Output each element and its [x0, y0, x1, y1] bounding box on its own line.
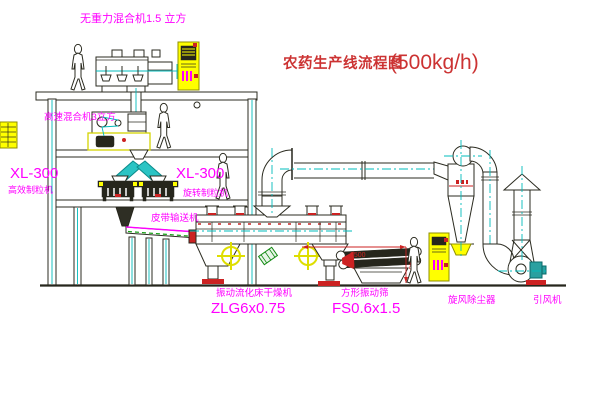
y-chute — [112, 161, 166, 184]
label-granulator-left-name: 高效制粒机 — [8, 184, 53, 195]
label-granulator-left-model: XL-300 — [10, 165, 58, 182]
mixer-outlet-cone — [130, 150, 148, 159]
label-screen-model: FS0.6x1.5 — [332, 300, 400, 317]
label-screen: 方形振动筛 — [341, 287, 389, 299]
indicator-light — [444, 263, 448, 267]
indicator-light — [444, 238, 448, 242]
label-dryer-model: ZLG6x0.75 — [211, 300, 285, 317]
indicator-light — [193, 43, 197, 47]
exhaust-duct — [254, 148, 438, 217]
granulator-left — [98, 181, 138, 201]
control-cabinet-top — [178, 42, 199, 90]
dim-width-label: 2500 — [350, 252, 366, 259]
title-capacity: (500kg/h) — [390, 51, 479, 74]
screen-base — [354, 268, 408, 283]
fan-motor — [530, 262, 542, 278]
cad-flow-diagram: 2500 340 无重力混合机1.5 立方 高速混合机3立方 XL-300 高效… — [0, 0, 600, 403]
indicator-light — [194, 74, 198, 78]
title-text: 农药生产线流程图 — [282, 54, 403, 72]
label-high-speed-mixer: 高速混合机3立方 — [44, 111, 116, 123]
diagram-canvas: 2500 340 无重力混合机1.5 立方 高速混合机3立方 XL-300 高效… — [0, 0, 600, 403]
mixer-motor — [96, 136, 114, 147]
fluid-bed-dryer-machine — [190, 206, 352, 286]
label-granulator-right-model: XL-300 — [176, 165, 224, 182]
wall-panel — [0, 122, 17, 148]
label-granulator-right-name: 旋转制粒机 — [183, 187, 228, 198]
diagram-title: 农药生产线流程图 (500kg/h) — [282, 51, 479, 74]
granulator-right — [138, 181, 178, 201]
person-figure — [71, 44, 85, 90]
label-gravity-mixer: 无重力混合机1.5 立方 — [80, 11, 186, 25]
label-fan: 引风机 — [533, 294, 562, 306]
label-dryer: 振动流化床干燥机 — [216, 287, 293, 299]
label-cyclone: 旋风除尘器 — [448, 294, 496, 306]
label-belt-conveyor: 皮带输送机 — [151, 212, 199, 224]
fan-base — [526, 280, 546, 285]
person-figure — [157, 103, 171, 148]
dryer-motor — [259, 247, 278, 264]
small-bin — [194, 102, 200, 108]
control-cabinet-screen — [429, 233, 449, 281]
person-figure — [407, 237, 421, 283]
